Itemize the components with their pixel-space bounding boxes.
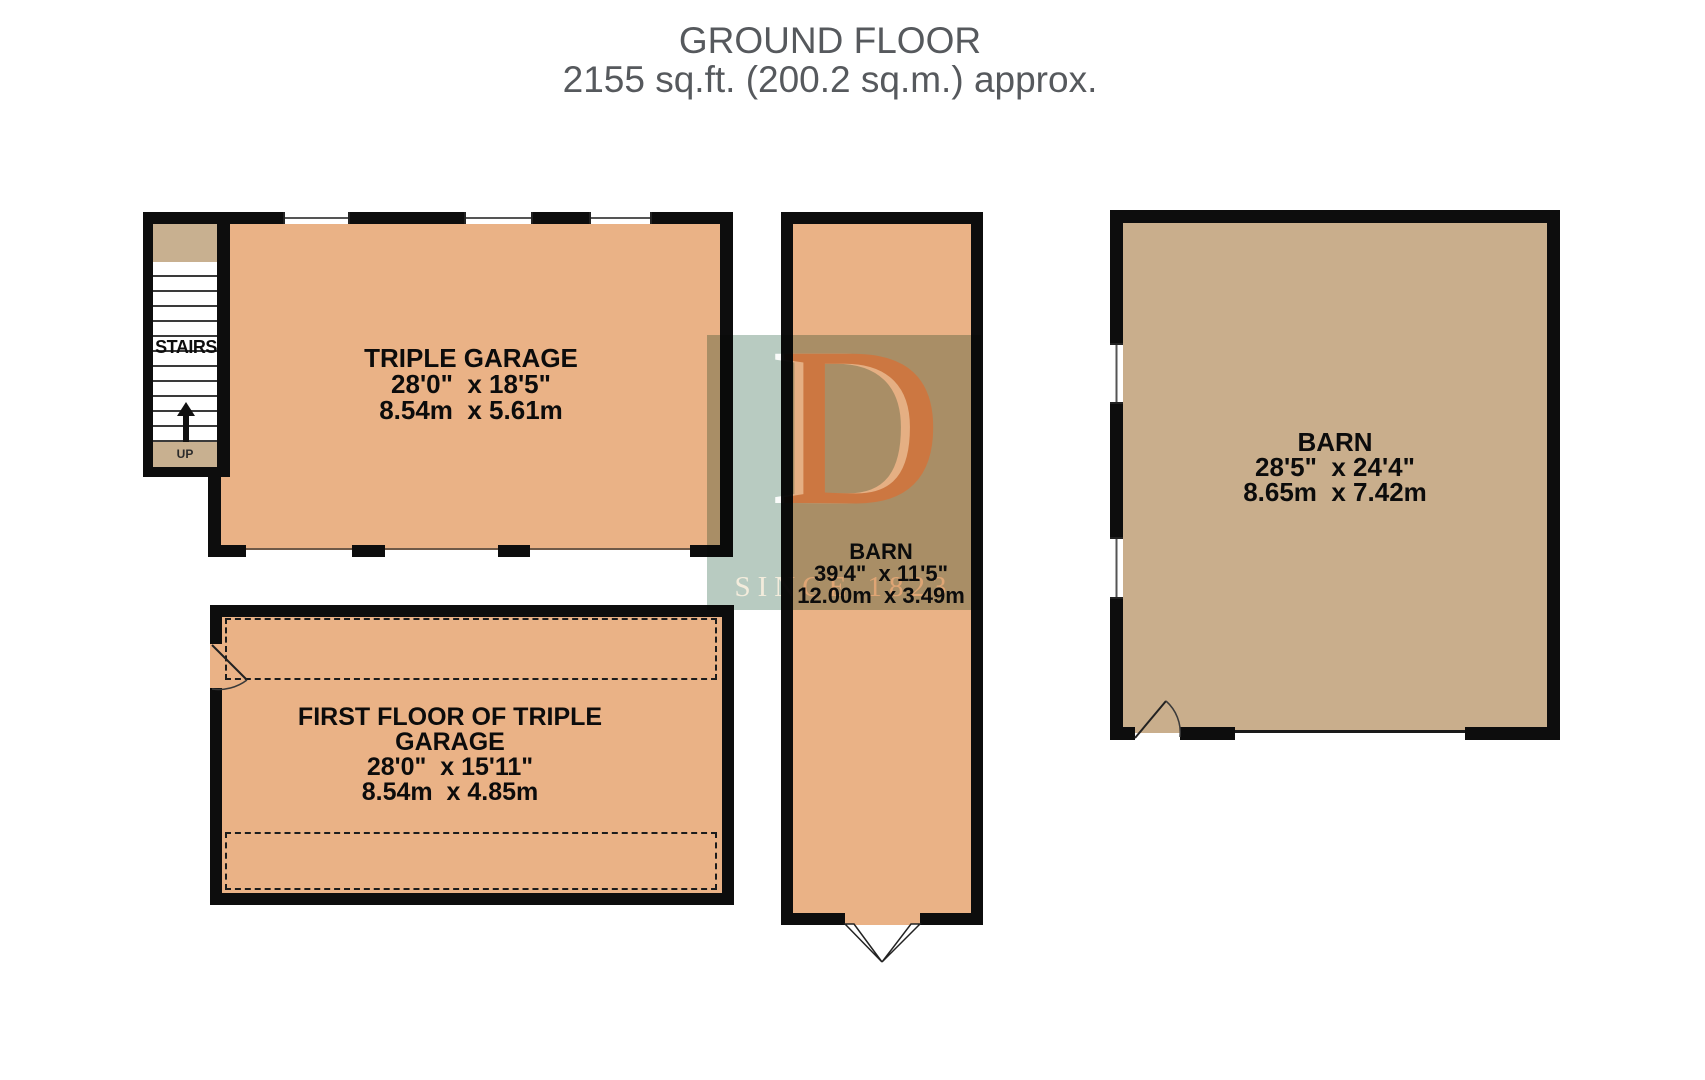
watermark-letter: D [745, 335, 975, 547]
floor-name: GROUND FLOOR [0, 22, 1660, 60]
barn-left-wall [1110, 210, 1123, 740]
room-dims-imperial: 28'0" x 15'11" [280, 755, 620, 780]
barn-top-wall [1110, 210, 1560, 223]
midbarn-bottom-wall-left [781, 913, 845, 925]
door-swing-icon [198, 638, 260, 698]
garage-door-pier-2 [498, 545, 530, 557]
ff-garage-top-wall [210, 605, 734, 617]
room-dims-metric: 8.54m x 4.85m [280, 780, 620, 805]
middle-barn-label: BARN 39'4" x 11'5" 12.00m x 3.49m [781, 541, 981, 607]
ff-garage-right-wall [722, 605, 734, 905]
midbarn-bottom-wall-right [920, 913, 983, 925]
room-dims-metric: 8.65m x 7.42m [1135, 480, 1535, 505]
restricted-height-band-top [225, 618, 717, 680]
midbarn-top-wall [781, 212, 983, 224]
room-name: TRIPLE GARAGE [271, 345, 671, 371]
restricted-height-band-bottom [225, 832, 717, 890]
floor-area: 2155 sq.ft. (200.2 sq.m.) approx. [0, 60, 1660, 100]
window [589, 212, 652, 224]
floorplan-canvas: GROUND FLOOR 2155 sq.ft. (200.2 sq.m.) a… [0, 0, 1705, 1080]
window [1110, 343, 1123, 404]
door-swing-icon [1128, 692, 1192, 742]
garage-door-pier-1 [352, 545, 385, 557]
room-dims-imperial: 28'0" x 18'5" [271, 371, 671, 397]
room-name: BARN [781, 541, 981, 563]
window [1110, 537, 1123, 599]
stairs-up-arrow-head [177, 402, 195, 416]
right-barn-label: BARN 28'5" x 24'4" 8.65m x 7.42m [1135, 430, 1535, 505]
window [464, 212, 533, 224]
window [283, 212, 350, 224]
garage-left-wall [208, 467, 221, 557]
garage-bottom-left-stub [208, 545, 246, 557]
ff-garage-left-wall-lower [210, 688, 222, 905]
stairs-up-arrow [183, 414, 189, 442]
barn-right-wall [1547, 210, 1560, 740]
first-floor-garage-label: FIRST FLOOR OF TRIPLE GARAGE 28'0" x 15'… [280, 705, 620, 805]
room-dims-imperial: 39'4" x 11'5" [781, 563, 981, 585]
room-dims-metric: 12.00m x 3.49m [781, 585, 981, 607]
stairs-label: STAIRS [140, 337, 232, 358]
barn-opening-line [1235, 730, 1465, 733]
ff-garage-bottom-wall [210, 893, 734, 905]
stair-landing [153, 222, 217, 262]
triple-garage-label: TRIPLE GARAGE 28'0" x 18'5" 8.54m x 5.61… [271, 345, 671, 423]
room-dims-metric: 8.54m x 5.61m [271, 397, 671, 423]
barn-bottom-right-wall [1465, 727, 1560, 740]
room-name: FIRST FLOOR OF TRIPLE GARAGE [280, 705, 620, 755]
garage-door-line [221, 548, 720, 550]
double-door-icon [840, 923, 928, 967]
stairs-up-label: UP [153, 447, 217, 461]
plan-title: GROUND FLOOR 2155 sq.ft. (200.2 sq.m.) a… [0, 22, 1660, 100]
